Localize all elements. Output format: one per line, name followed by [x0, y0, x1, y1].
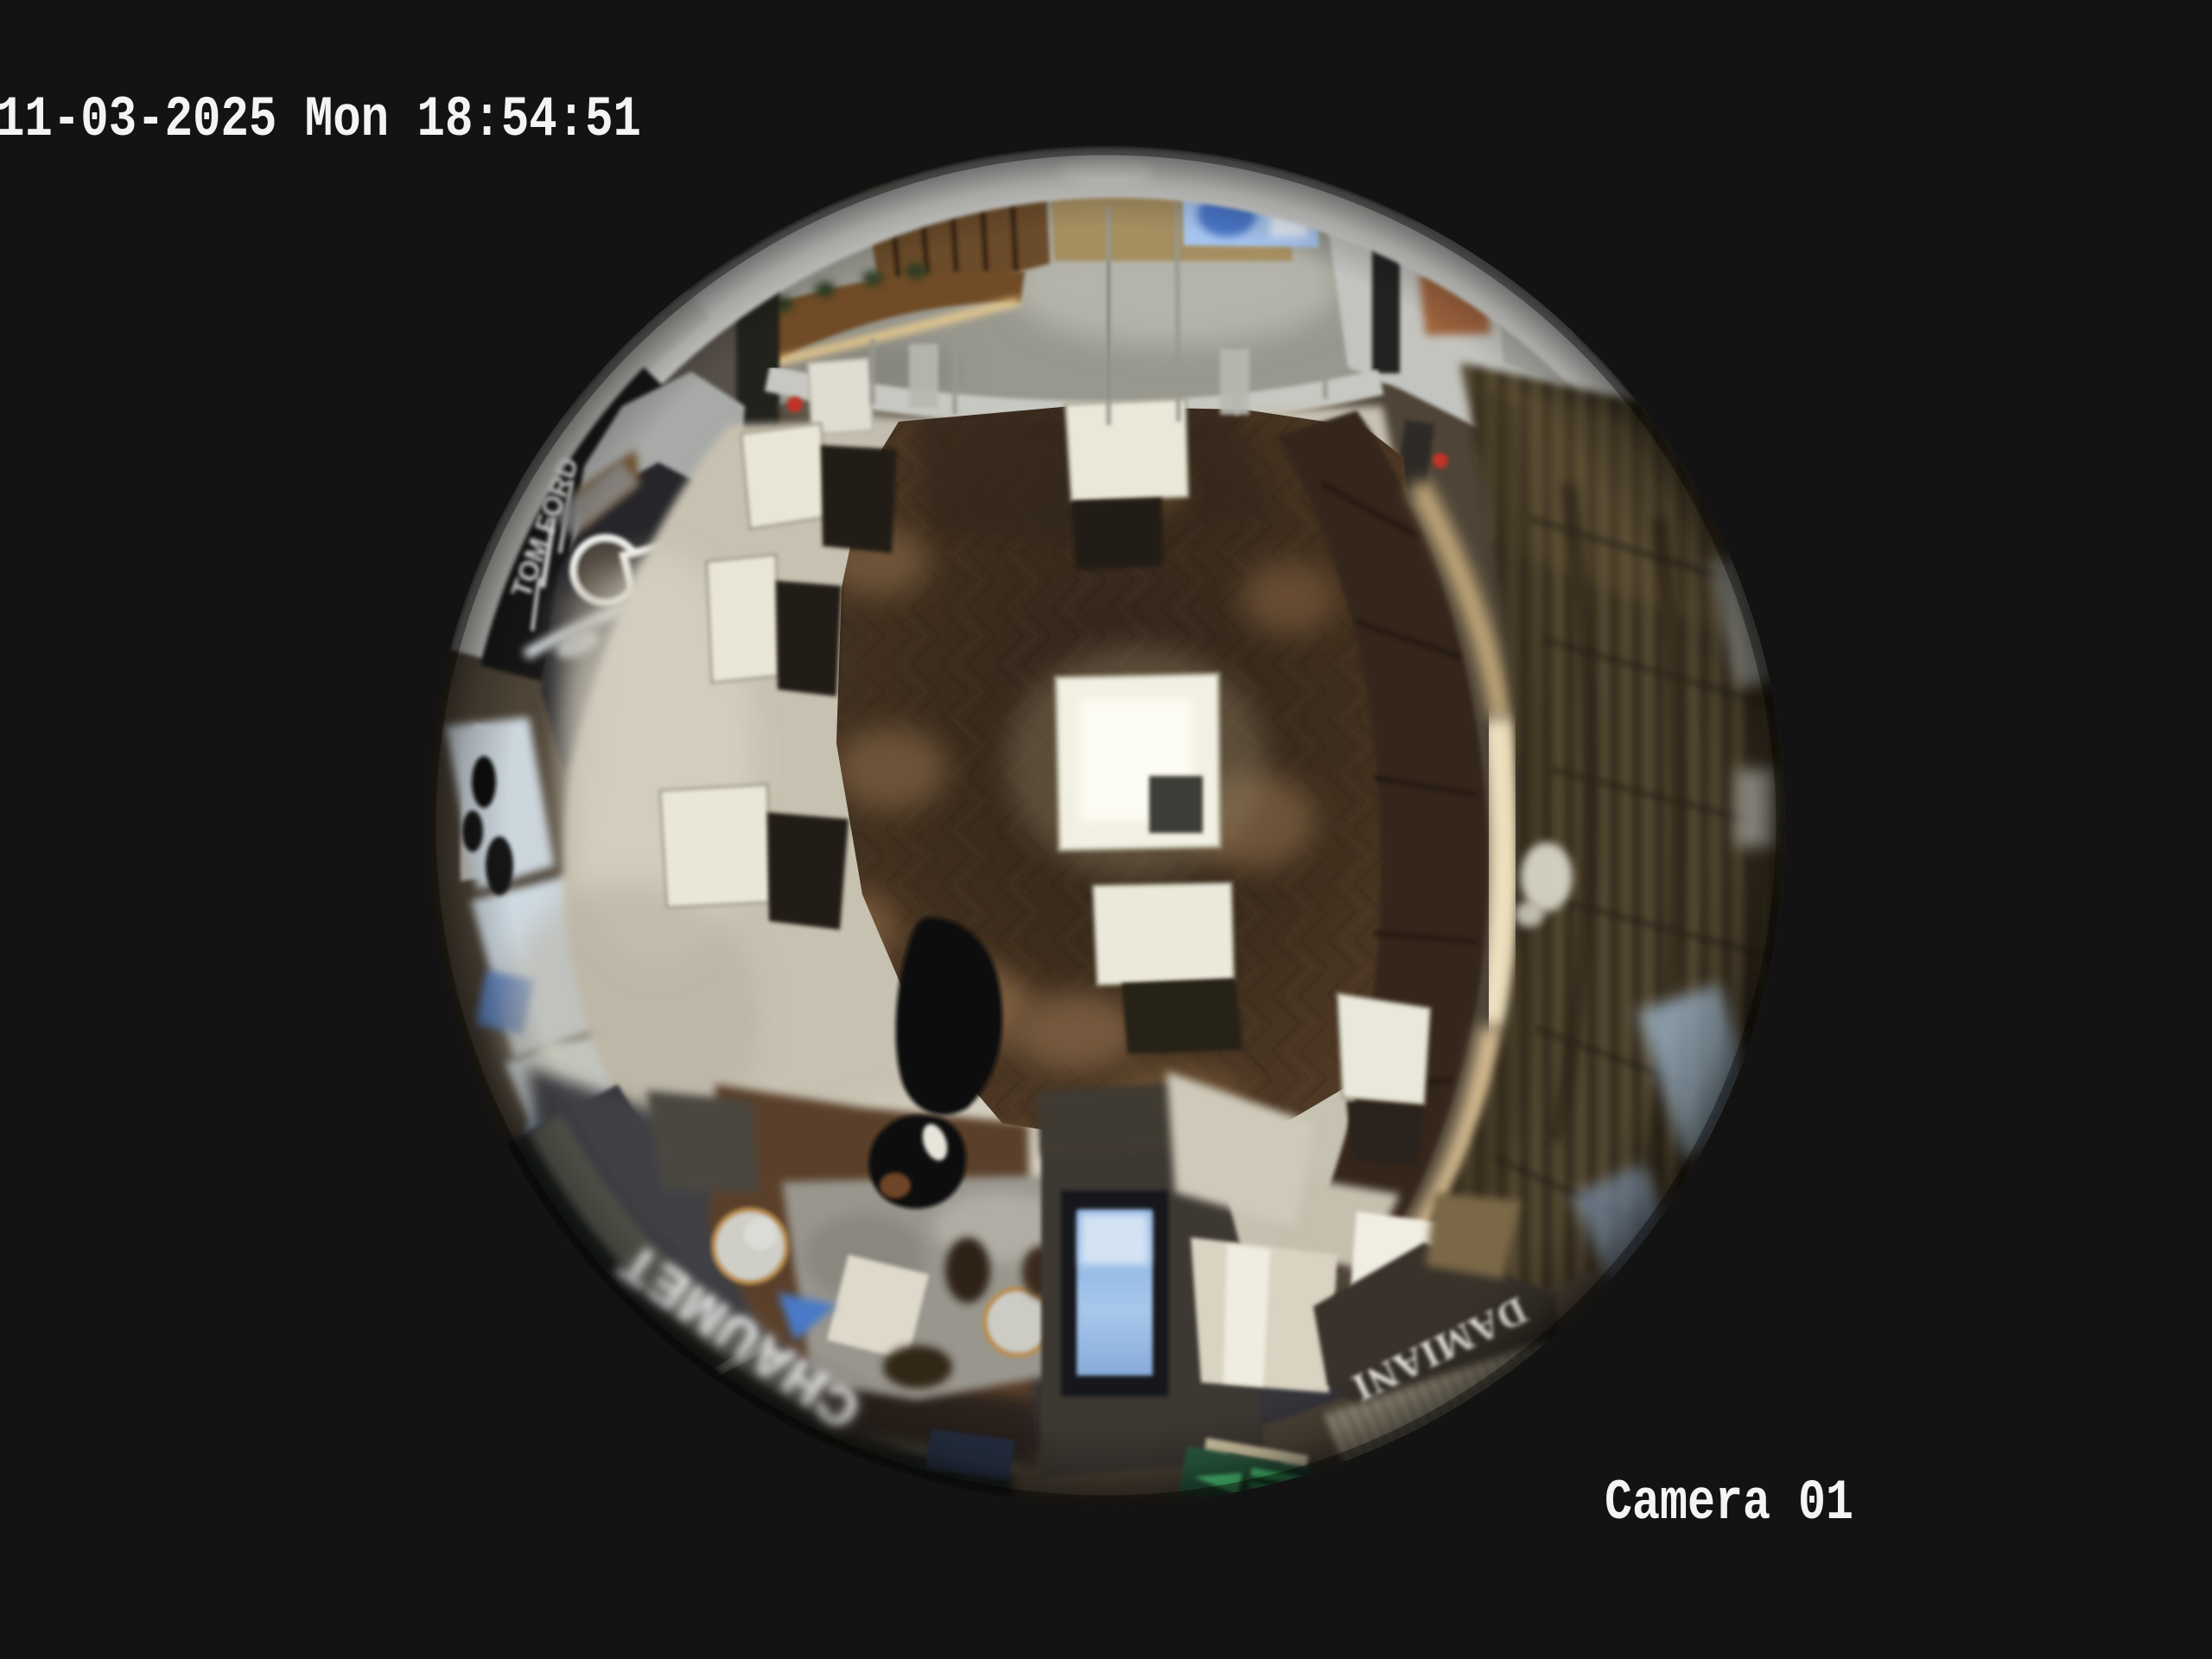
svg-text:11-03-2025 Mon 18:54:51: 11-03-2025 Mon 18:54:51: [0, 87, 641, 152]
svg-text:Camera 01: Camera 01: [1605, 1471, 1853, 1535]
